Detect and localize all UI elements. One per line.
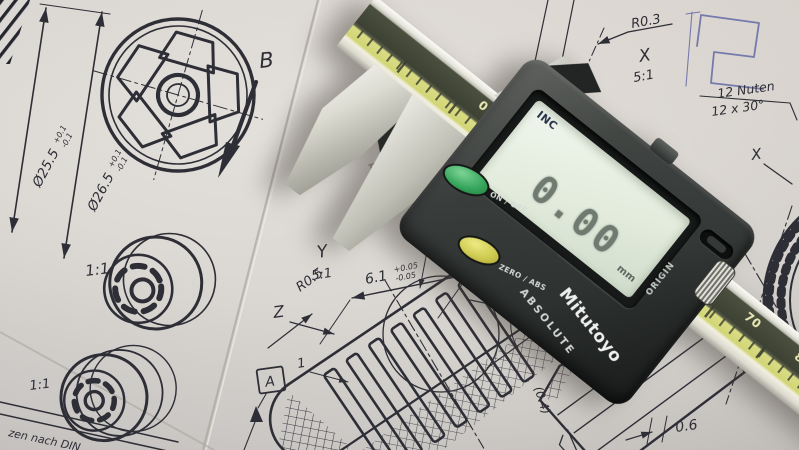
corner-hatch-band — [0, 0, 30, 64]
dim-outer-value: Ø25.5 — [29, 146, 63, 190]
lcd-measurement-value: 0.00 — [522, 166, 630, 265]
radius-corner-label: R0.3 — [630, 12, 662, 32]
dim-diameter-inner: Ø26.5 +0.1 -0.1 — [84, 148, 132, 216]
nuten-note-line1: 12 Nuten — [716, 78, 775, 101]
detail-x-label: X — [636, 45, 652, 67]
photo-stage: Ø25.5 +0.1 -0.1 Ø26.5 +0.1 -0.1 B — [0, 0, 799, 450]
view-arrow-b-label: B — [258, 48, 275, 73]
beam-scale-70: 70 — [742, 310, 765, 332]
origin-button — [697, 226, 737, 262]
lcd-mode-indicator: INC — [534, 108, 560, 132]
lcd-unit-label: mm — [614, 263, 637, 285]
dim-inner-value: Ø26.5 — [84, 170, 118, 214]
wheel-iso-mid — [99, 229, 220, 334]
zero-abs-button — [453, 229, 505, 271]
callout-x-label: X — [749, 145, 763, 164]
nuten-note: 12 Nuten 12 x 30° — [700, 78, 797, 120]
detail-x-callout: R0.3 X 5:1 — [598, 12, 672, 86]
pen-sketch — [686, 12, 763, 89]
dim-diameter-outer: Ø25.5 +0.1 -0.1 — [29, 124, 77, 192]
detail-x-scale: 5:1 — [632, 68, 655, 86]
datum-a-label: A — [263, 374, 276, 391]
view-arrow-b: B — [218, 48, 275, 178]
dim-one-left: 1 — [296, 356, 307, 372]
scale-label-bottom: 1:1 — [29, 377, 52, 394]
